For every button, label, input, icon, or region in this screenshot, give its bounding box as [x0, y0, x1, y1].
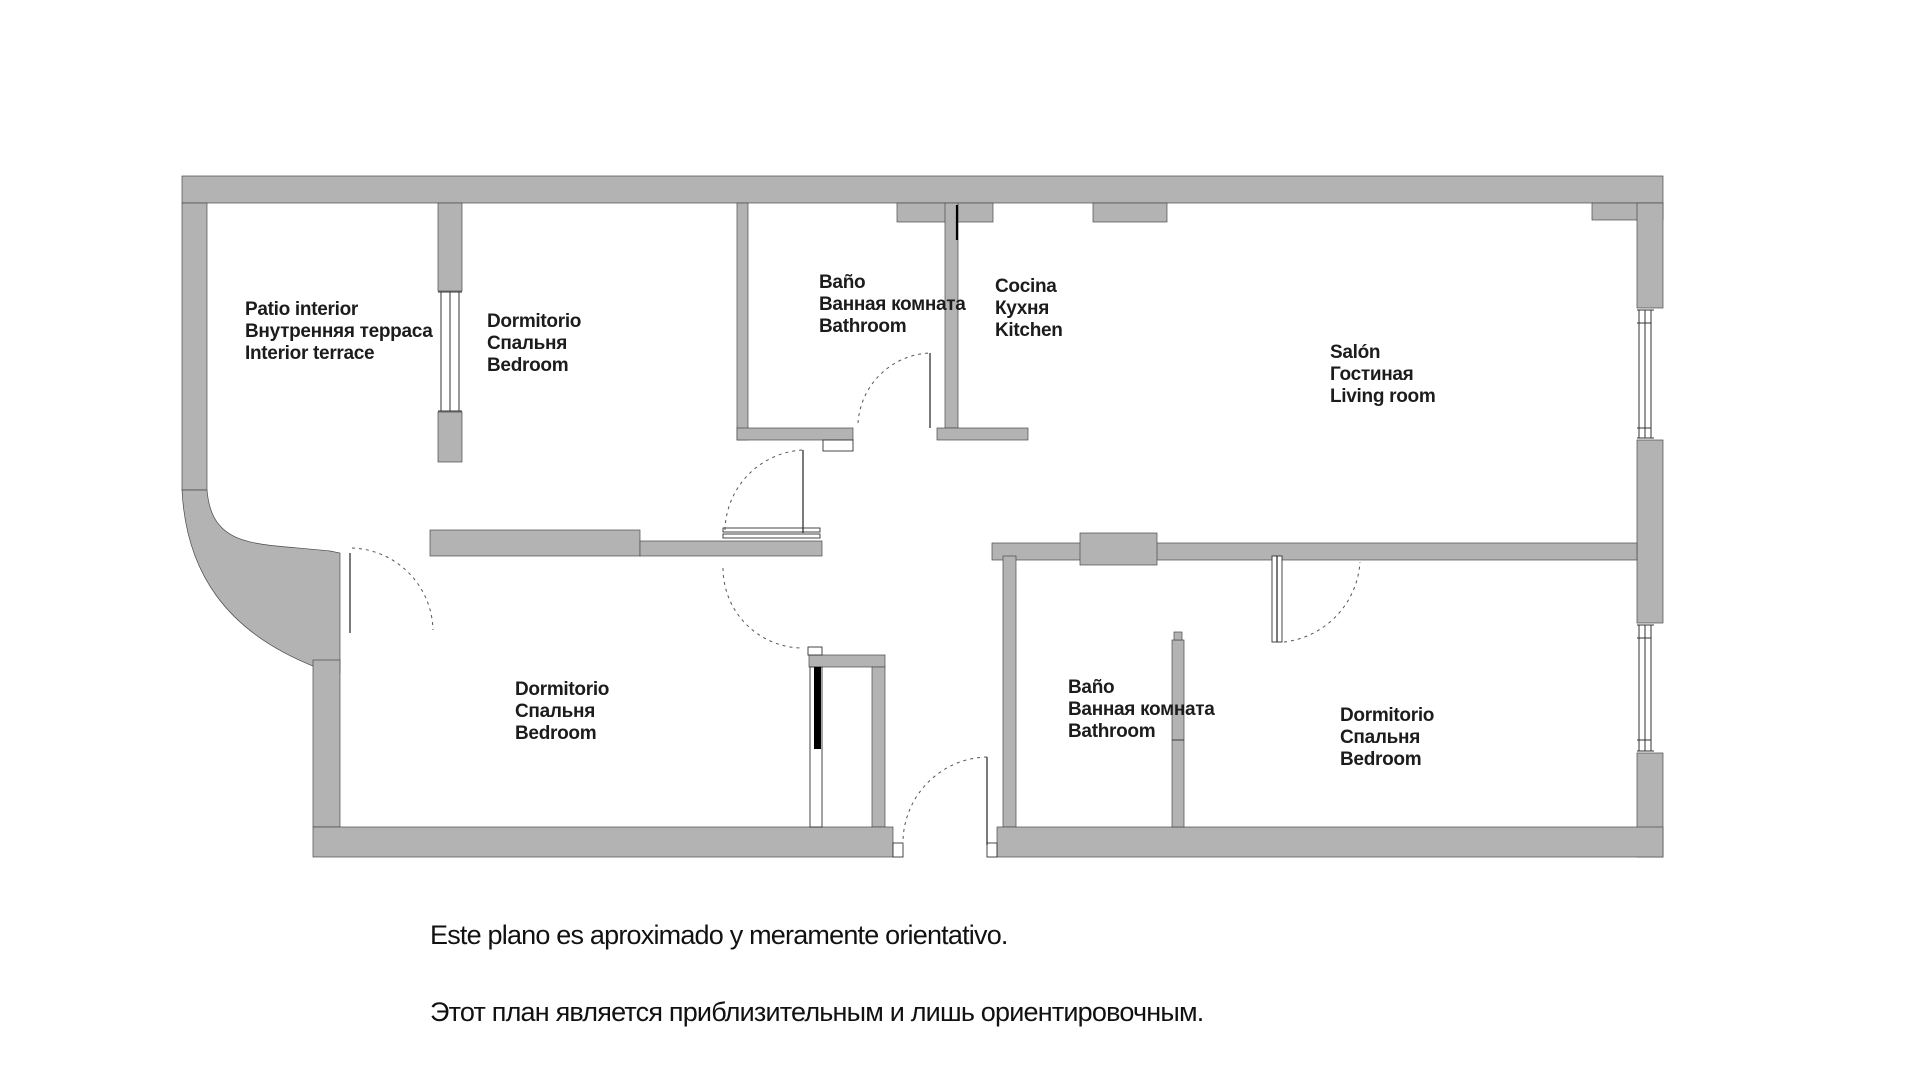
- wall-bathroom-bedroom-partition: [1172, 640, 1184, 827]
- label-bedroom-bottom-left: Dormitorio Спальня Bedroom: [515, 679, 609, 745]
- jamb-hall: [808, 647, 822, 655]
- wall-patio-right-upper: [438, 203, 462, 291]
- label-living-room-en: Living room: [1330, 386, 1435, 408]
- label-patio-en: Interior terrace: [245, 343, 433, 365]
- sliding-door-hall-a: [723, 528, 820, 532]
- label-kitchen-ru: Кухня: [995, 298, 1063, 320]
- pillar-top-living: [1093, 203, 1167, 222]
- label-kitchen: Cocina Кухня Kitchen: [995, 276, 1063, 342]
- label-bathroom-bottom-en: Bathroom: [1068, 721, 1164, 743]
- label-bathroom-bottom: Baño Ванная комната Bathroom: [1068, 677, 1164, 743]
- window-bedroom-right: [1637, 625, 1654, 751]
- swing-patio-door: [352, 548, 433, 630]
- label-bedroom-bottom-right-ru: Спальня: [1340, 727, 1434, 749]
- jamb-bathroomtop: [823, 440, 853, 451]
- label-kitchen-en: Kitchen: [995, 320, 1063, 342]
- label-living-room: Salón Гостиная Living room: [1330, 342, 1435, 408]
- window-living-room: [1637, 310, 1654, 438]
- sliding-door-hall-b: [723, 534, 820, 538]
- walls: [182, 176, 1663, 857]
- door-swings: [352, 353, 1360, 845]
- window-patio: [438, 292, 462, 411]
- wall-bathroomtop-bottom: [737, 428, 853, 440]
- wall-right-upper: [1637, 203, 1663, 308]
- leaf-closet-black: [814, 667, 821, 749]
- label-patio-es: Patio interior: [245, 299, 433, 321]
- wall-patio-right-lower: [438, 412, 462, 462]
- swing-bathroomtop: [858, 353, 930, 423]
- label-living-room-ru: Гостиная: [1330, 364, 1435, 386]
- label-bedroom-top-es: Dormitorio: [487, 311, 581, 333]
- label-patio-ru: Внутренняя терраса: [245, 321, 433, 343]
- wall-right-middle: [1637, 440, 1663, 623]
- label-kitchen-es: Cocina: [995, 276, 1063, 298]
- door-frames: [723, 440, 1282, 857]
- label-bathroom-top-es: Baño: [819, 272, 915, 294]
- swing-entry: [903, 757, 987, 845]
- swing-hall-upper: [725, 450, 803, 530]
- label-bathroom-top-ru: Ванная комната: [819, 294, 915, 316]
- disclaimer-ru: Этот план является приблизительным и лиш…: [430, 997, 1203, 1028]
- jamb-entry-right: [987, 843, 997, 857]
- wall-bedroomleft-left: [313, 660, 340, 827]
- wall-left: [182, 203, 207, 490]
- disclaimer-es: Este plano es aproximado y meramente ori…: [430, 920, 1008, 951]
- wall-bottom-right: [997, 827, 1663, 857]
- jamb-entry-left: [893, 843, 903, 857]
- wall-curve: [182, 490, 340, 673]
- label-patio: Patio interior Внутренняя терраса Interi…: [245, 299, 433, 365]
- label-bedroom-top: Dormitorio Спальня Bedroom: [487, 311, 581, 377]
- label-bedroom-bottom-left-es: Dormitorio: [515, 679, 609, 701]
- pillar-living-bottom: [1080, 533, 1157, 565]
- label-living-room-es: Salón: [1330, 342, 1435, 364]
- wall-partition-cap: [1174, 632, 1182, 640]
- label-bedroom-bottom-right: Dormitorio Спальня Bedroom: [1340, 705, 1434, 771]
- wall-closet-right: [872, 667, 885, 827]
- label-bathroom-top-en: Bathroom: [819, 316, 915, 338]
- wall-closet-top: [809, 655, 885, 667]
- floor-plan-page: Patio interior Внутренняя терраса Interi…: [0, 0, 1920, 1080]
- label-bedroom-top-ru: Спальня: [487, 333, 581, 355]
- wall-top: [182, 176, 1663, 203]
- swing-hall-lower: [723, 568, 803, 648]
- wall-hall-bathroom: [1003, 556, 1016, 827]
- swing-bedroomright: [1284, 562, 1360, 642]
- label-bedroom-top-en: Bedroom: [487, 355, 581, 377]
- wall-hall-right: [640, 541, 822, 556]
- floor-plan-drawing: [0, 0, 1920, 1080]
- wall-hall-left: [430, 530, 640, 556]
- label-bathroom-top: Baño Ванная комната Bathroom: [819, 272, 915, 338]
- label-bedroom-bottom-right-es: Dormitorio: [1340, 705, 1434, 727]
- label-bedroom-bottom-left-ru: Спальня: [515, 701, 609, 723]
- wall-bottom-left: [313, 827, 893, 857]
- wall-kitchen-foot: [937, 428, 1028, 440]
- wall-bathroomtop-left: [737, 203, 748, 440]
- windows: [438, 292, 1654, 751]
- label-bedroom-bottom-left-en: Bedroom: [515, 723, 609, 745]
- label-bathroom-bottom-ru: Ванная комната: [1068, 699, 1164, 721]
- label-bathroom-bottom-es: Baño: [1068, 677, 1164, 699]
- label-bedroom-bottom-right-en: Bedroom: [1340, 749, 1434, 771]
